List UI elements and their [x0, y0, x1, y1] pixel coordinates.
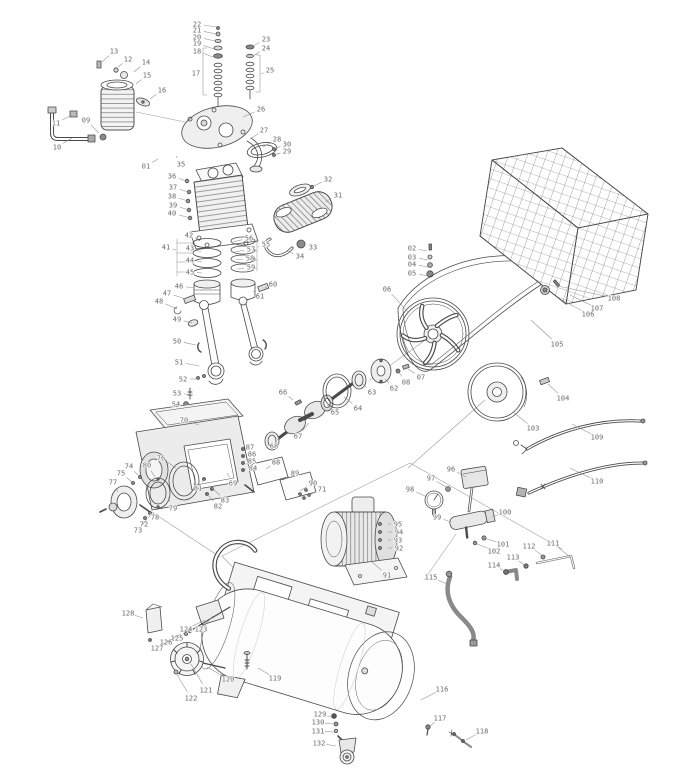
callout-89: 89 — [291, 469, 299, 477]
leader-line-116 — [421, 692, 436, 700]
leader-line-55 — [258, 246, 259, 247]
leader-line-01 — [152, 159, 158, 162]
callout-59: 59 — [247, 263, 255, 271]
crankshaft — [265, 359, 409, 450]
leader-line-20 — [204, 39, 215, 41]
callout-100: 100 — [499, 508, 512, 516]
leader-line-14 — [134, 66, 141, 72]
callout-119: 119 — [269, 674, 282, 682]
callout-62: 62 — [390, 384, 398, 392]
callout-76: 76 — [157, 454, 165, 462]
leader-line-61 — [253, 291, 254, 292]
leader-line-75 — [126, 477, 132, 482]
callout-18: 18 — [193, 47, 201, 55]
callout-91: 91 — [383, 571, 391, 579]
callout-55: 55 — [262, 240, 270, 248]
braided-hose — [446, 571, 477, 646]
callout-102: 102 — [488, 547, 501, 555]
leader-line-16 — [150, 94, 156, 99]
crankcase-gaskets — [252, 457, 316, 500]
callout-61: 61 — [256, 292, 264, 300]
leader-line-41 — [173, 249, 176, 250]
callout-87: 87 — [246, 443, 254, 451]
callout-26: 26 — [257, 105, 265, 113]
leader-line-27 — [250, 134, 258, 139]
callout-29: 29 — [283, 147, 291, 155]
callout-14: 14 — [142, 58, 150, 66]
callout-39: 39 — [169, 201, 177, 209]
leader-line-131 — [325, 731, 334, 732]
callout-124: 124 — [180, 625, 193, 633]
callout-128: 128 — [122, 609, 135, 617]
callout-99: 99 — [433, 513, 441, 521]
callout-90: 90 — [309, 479, 317, 487]
leader-line-35 — [176, 156, 177, 158]
callout-23: 23 — [262, 35, 270, 43]
leader-line-98 — [416, 492, 427, 497]
callout-31: 31 — [334, 191, 342, 199]
callout-01: 01 — [142, 162, 150, 170]
leader-line-11 — [62, 115, 72, 120]
callout-104: 104 — [557, 394, 570, 402]
callout-105: 105 — [551, 340, 564, 348]
callout-13: 13 — [110, 47, 118, 55]
leader-line-23 — [253, 42, 260, 46]
callout-75: 75 — [117, 469, 125, 477]
callout-129: 129 — [314, 710, 327, 718]
callout-112: 112 — [523, 542, 536, 550]
callout-33: 33 — [309, 243, 317, 251]
callout-111: 111 — [547, 539, 560, 547]
valve-stack-left — [203, 27, 223, 107]
callout-70: 70 — [180, 416, 188, 424]
callout-115: 115 — [425, 573, 438, 581]
callout-94: 94 — [395, 528, 403, 536]
piston-left — [174, 280, 224, 406]
callout-88: 88 — [272, 458, 280, 466]
callout-79: 79 — [169, 504, 177, 512]
leader-line-132 — [326, 744, 336, 746]
callout-97: 97 — [427, 474, 435, 482]
callout-08: 08 — [402, 378, 410, 386]
leader-line-18 — [204, 53, 213, 57]
callout-63: 63 — [368, 388, 376, 396]
callout-09: 09 — [82, 116, 90, 124]
leader-line-43 — [197, 250, 201, 252]
leader-line-03 — [419, 258, 428, 260]
leader-line-113 — [519, 561, 526, 566]
callout-40: 40 — [168, 209, 176, 217]
callout-64: 64 — [354, 404, 362, 412]
callout-73: 73 — [134, 526, 142, 534]
motor-pulley — [468, 363, 550, 421]
leader-line-102 — [475, 543, 488, 548]
leader-line-118 — [466, 734, 476, 740]
callout-83: 83 — [221, 496, 229, 504]
callout-113: 113 — [507, 553, 520, 561]
leader-line-129 — [327, 716, 331, 717]
leader-line-21 — [204, 31, 216, 34]
callout-81: 81 — [194, 484, 202, 492]
callout-46: 46 — [175, 282, 183, 290]
leader-line-58 — [236, 259, 243, 260]
callout-37: 37 — [169, 183, 177, 191]
callout-117: 117 — [434, 714, 447, 722]
callout-05: 05 — [408, 269, 416, 277]
callout-107: 107 — [591, 304, 604, 312]
callout-96: 96 — [447, 465, 455, 473]
callout-43: 43 — [186, 244, 194, 252]
leader-line-57 — [235, 250, 244, 252]
leader-line-36 — [179, 178, 186, 181]
callout-02: 02 — [408, 244, 416, 252]
leader-line-128 — [135, 615, 143, 618]
leader-line-50 — [184, 342, 196, 345]
callout-123: 123 — [195, 625, 208, 633]
callout-34: 34 — [296, 252, 304, 260]
leader-line-40 — [179, 215, 190, 218]
callout-45: 45 — [186, 268, 194, 276]
callout-68: 68 — [270, 442, 278, 450]
callout-50: 50 — [173, 337, 181, 345]
callout-103: 103 — [527, 424, 540, 432]
callout-27: 27 — [260, 126, 268, 134]
leader-line-22 — [204, 25, 216, 27]
callout-47: 47 — [163, 289, 171, 297]
callout-07: 07 — [417, 373, 425, 381]
callout-67: 67 — [294, 432, 302, 440]
callout-58: 58 — [246, 254, 254, 262]
callout-17: 17 — [192, 69, 200, 77]
leader-line-130 — [325, 723, 333, 724]
callout-24: 24 — [262, 44, 270, 52]
muffler — [266, 182, 337, 256]
callout-109: 109 — [591, 433, 604, 441]
leader-line-103 — [513, 412, 528, 424]
callout-56: 56 — [245, 234, 253, 242]
callout-110: 110 — [591, 477, 604, 485]
crankcase — [136, 399, 254, 512]
leader-line-12 — [118, 63, 123, 67]
callout-32: 32 — [324, 175, 332, 183]
callout-69: 69 — [229, 479, 237, 487]
diagram-canvas: 0102030405060708091011121314151617181920… — [0, 0, 686, 768]
callout-132: 132 — [313, 739, 326, 747]
callout-85: 85 — [248, 457, 256, 465]
callout-15: 15 — [143, 71, 151, 79]
caster-wheel — [332, 714, 356, 764]
callout-118: 118 — [476, 727, 489, 735]
callout-86: 86 — [248, 450, 256, 458]
callout-22: 22 — [193, 20, 201, 28]
leader-line-105 — [531, 320, 552, 339]
leader-line-09 — [91, 125, 99, 133]
callout-93: 93 — [394, 536, 402, 544]
callout-95: 95 — [394, 520, 402, 528]
callout-60: 60 — [269, 280, 277, 288]
callout-12: 12 — [124, 55, 132, 63]
callout-98: 98 — [406, 485, 414, 493]
callout-10: 10 — [53, 143, 61, 151]
callout-30: 30 — [283, 140, 291, 148]
callout-06: 06 — [383, 285, 391, 293]
callout-51: 51 — [175, 358, 183, 366]
leader-line-15 — [136, 79, 142, 84]
callout-120: 120 — [222, 675, 235, 683]
leader-line-32 — [312, 182, 322, 187]
leader-line-74 — [134, 471, 139, 476]
leader-line-44 — [197, 261, 202, 262]
callout-71: 71 — [318, 485, 326, 493]
callout-74: 74 — [125, 462, 133, 470]
leader-line-25 — [261, 73, 264, 74]
leader-line-115 — [437, 580, 447, 584]
callout-92: 92 — [395, 544, 403, 552]
callout-42: 42 — [185, 231, 193, 239]
callout-25: 25 — [266, 66, 274, 74]
callout-20: 20 — [193, 33, 201, 41]
leader-line-59 — [237, 268, 244, 269]
leader-line-48 — [165, 304, 177, 309]
callout-52: 52 — [179, 375, 187, 383]
belt-guard-grid — [480, 148, 648, 304]
leader-line-112 — [535, 550, 543, 556]
callout-77: 77 — [109, 478, 117, 486]
callout-130: 130 — [312, 718, 325, 726]
callout-127: 127 — [151, 644, 164, 652]
leader-line-04 — [419, 265, 428, 267]
callout-80: 80 — [143, 461, 151, 469]
callout-35: 35 — [177, 160, 185, 168]
callout-36: 36 — [168, 172, 176, 180]
callout-78: 78 — [151, 513, 159, 521]
leader-line-07 — [408, 369, 415, 373]
drain-plug — [426, 725, 471, 747]
callout-121: 121 — [200, 686, 213, 694]
callout-116: 116 — [436, 685, 449, 693]
leader-line-122 — [176, 673, 187, 692]
leader-line-104 — [548, 384, 558, 393]
leader-line-02 — [419, 249, 427, 251]
leader-line-24 — [253, 52, 260, 56]
leader-line-117 — [430, 722, 435, 726]
callout-11: 11 — [52, 119, 60, 127]
leader-line-111 — [558, 547, 570, 557]
leader-line-37 — [180, 189, 188, 192]
leader-line-101 — [484, 538, 496, 542]
callout-84: 84 — [249, 464, 257, 472]
callout-57: 57 — [247, 245, 255, 253]
callout-108: 108 — [608, 294, 621, 302]
callout-53: 53 — [173, 389, 181, 397]
leader-line-66 — [288, 396, 293, 400]
cylinder-head — [177, 99, 257, 155]
leader-line-47 — [174, 295, 186, 299]
callout-49: 49 — [173, 315, 181, 323]
parts-diagram-page: 0102030405060708091011121314151617181920… — [0, 0, 686, 768]
callout-16: 16 — [158, 86, 166, 94]
callout-122: 122 — [185, 694, 198, 702]
callout-48: 48 — [155, 297, 163, 305]
leader-line-51 — [186, 363, 199, 366]
callout-04: 04 — [408, 260, 416, 268]
callout-114: 114 — [488, 561, 501, 569]
callout-66: 66 — [279, 388, 287, 396]
callout-54: 54 — [172, 400, 180, 408]
callout-38: 38 — [168, 192, 176, 200]
callout-28: 28 — [273, 135, 281, 143]
callout-44: 44 — [186, 256, 194, 264]
callout-41: 41 — [162, 243, 170, 251]
leader-line-13 — [102, 56, 109, 62]
callout-65: 65 — [331, 408, 339, 416]
callout-131: 131 — [312, 727, 325, 735]
leader-line-19 — [204, 45, 214, 49]
